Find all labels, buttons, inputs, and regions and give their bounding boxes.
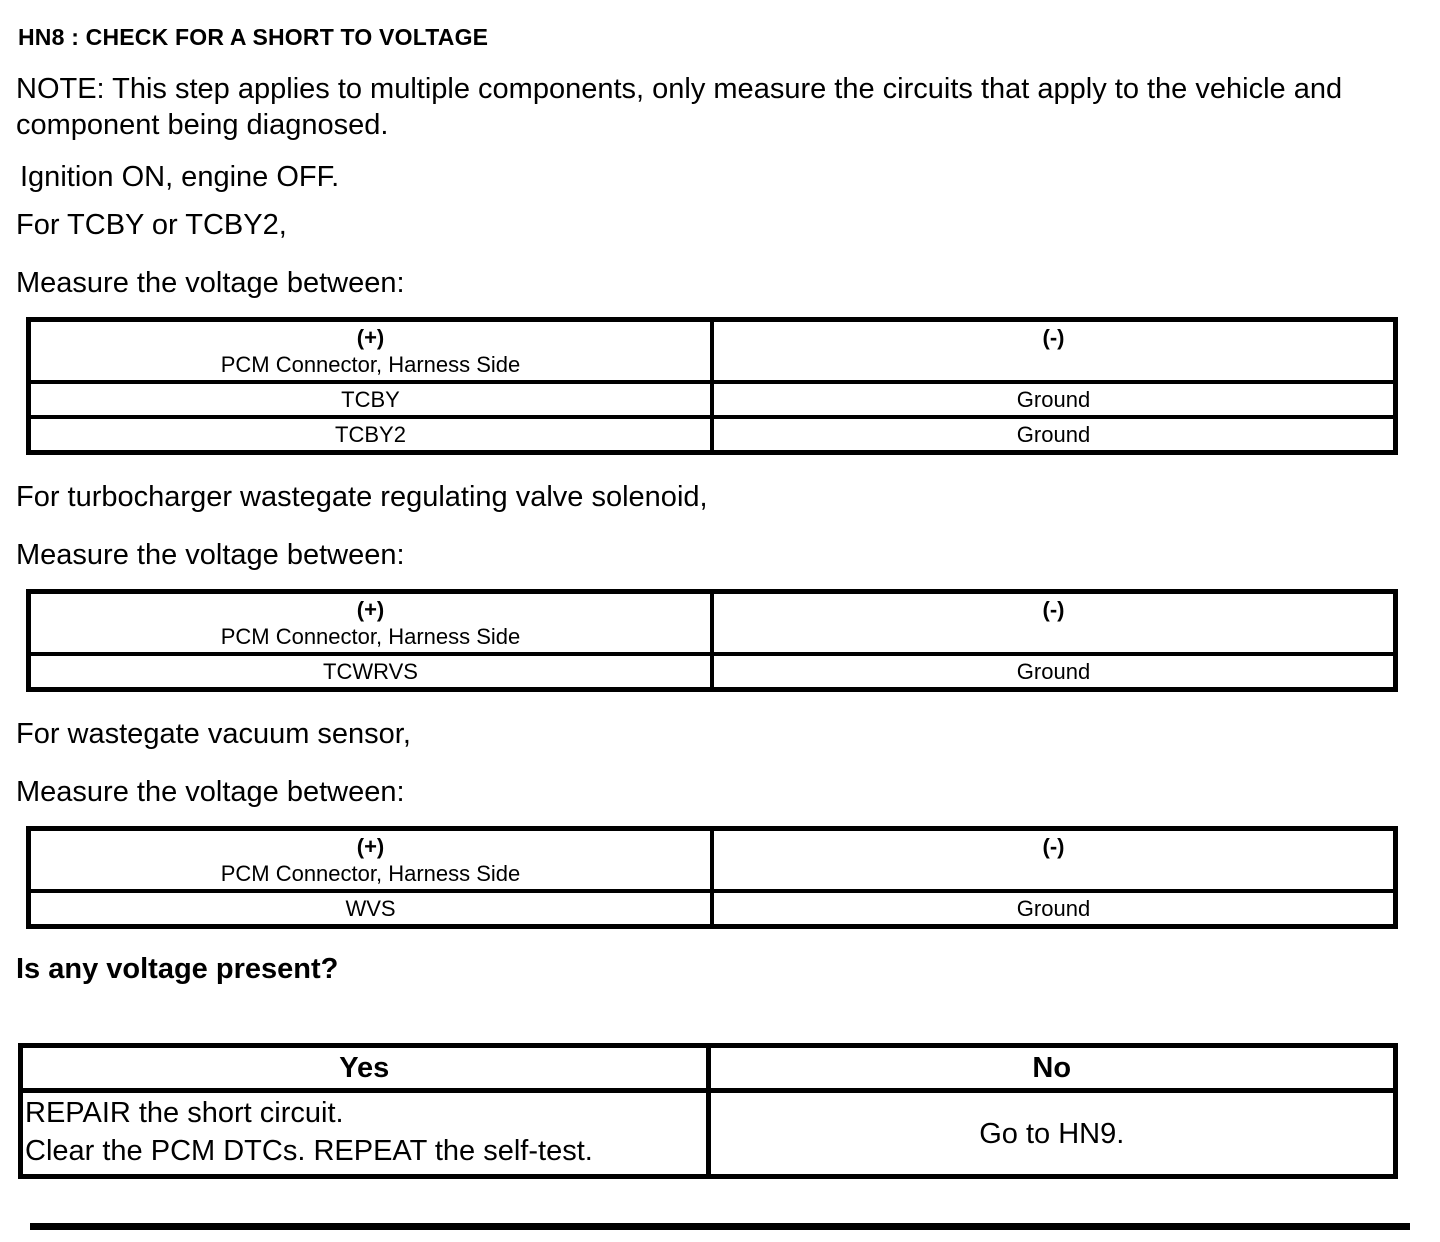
pos-header-cell: (+) PCM Connector, Harness Side (29, 592, 713, 655)
pos-source-label: PCM Connector, Harness Side (35, 351, 706, 378)
measure-instruction: Measure the voltage between: (16, 265, 1412, 301)
neg-header-cell: (-) (712, 592, 1396, 655)
measurement-table-wvs: (+) PCM Connector, Harness Side (-) WVS … (26, 826, 1398, 929)
decision-body-row: REPAIR the short circuit. Clear the PCM … (21, 1091, 1396, 1177)
ignition-text: Ignition ON, engine OFF. (20, 159, 1412, 195)
pos-sign: (+) (35, 324, 706, 351)
neg-sign: (-) (718, 833, 1389, 860)
pos-cell: TCBY2 (29, 417, 713, 453)
pos-sign: (+) (35, 596, 706, 623)
pos-header-cell: (+) PCM Connector, Harness Side (29, 829, 713, 892)
question-text: Is any voltage present? (16, 951, 1412, 987)
table-header-row: (+) PCM Connector, Harness Side (-) (29, 320, 1396, 383)
table-row: WVS Ground (29, 891, 1396, 927)
pos-source-label: PCM Connector, Harness Side (35, 623, 706, 650)
neg-header-cell: (-) (712, 829, 1396, 892)
yes-action-line: Clear the PCM DTCs. REPEAT the self-test… (25, 1132, 702, 1170)
section-intro-wastegate-vacuum-sensor: For wastegate vacuum sensor, (16, 716, 1412, 752)
neg-cell: Ground (712, 654, 1396, 690)
neg-sign: (-) (718, 324, 1389, 351)
pos-sign: (+) (35, 833, 706, 860)
yes-action-cell: REPAIR the short circuit. Clear the PCM … (21, 1091, 709, 1177)
pos-cell: TCBY (29, 382, 713, 417)
pos-cell: WVS (29, 891, 713, 927)
table-header-row: (+) PCM Connector, Harness Side (-) (29, 592, 1396, 655)
table-row: TCWRVS Ground (29, 654, 1396, 690)
neg-sign: (-) (718, 596, 1389, 623)
table-header-row: (+) PCM Connector, Harness Side (-) (29, 829, 1396, 892)
table-row: TCBY2 Ground (29, 417, 1396, 453)
note-text: NOTE: This step applies to multiple comp… (16, 71, 1412, 143)
measurement-table-tcby: (+) PCM Connector, Harness Side (-) TCBY… (26, 317, 1398, 455)
section-intro-wastegate-solenoid: For turbocharger wastegate regulating va… (16, 479, 1412, 515)
pos-header-cell: (+) PCM Connector, Harness Side (29, 320, 713, 383)
neg-cell: Ground (712, 417, 1396, 453)
measure-instruction: Measure the voltage between: (16, 537, 1412, 573)
decision-table: Yes No REPAIR the short circuit. Clear t… (18, 1043, 1398, 1179)
yes-action-line: REPAIR the short circuit. (25, 1094, 702, 1132)
section-intro-tcby: For TCBY or TCBY2, (16, 207, 1412, 243)
measure-instruction: Measure the voltage between: (16, 774, 1412, 810)
no-header-cell: No (708, 1046, 1396, 1091)
bottom-divider-rule (30, 1223, 1410, 1230)
pos-source-label: PCM Connector, Harness Side (35, 860, 706, 887)
measurement-table-solenoid: (+) PCM Connector, Harness Side (-) TCWR… (26, 589, 1398, 692)
document-page: HN8 : CHECK FOR A SHORT TO VOLTAGE NOTE:… (0, 24, 1440, 1230)
table-row: TCBY Ground (29, 382, 1396, 417)
step-title: HN8 : CHECK FOR A SHORT TO VOLTAGE (18, 24, 1412, 51)
neg-cell: Ground (712, 382, 1396, 417)
decision-header-row: Yes No (21, 1046, 1396, 1091)
pos-cell: TCWRVS (29, 654, 713, 690)
no-action-cell: Go to HN9. (708, 1091, 1396, 1177)
neg-header-cell: (-) (712, 320, 1396, 383)
yes-header-cell: Yes (21, 1046, 709, 1091)
neg-cell: Ground (712, 891, 1396, 927)
